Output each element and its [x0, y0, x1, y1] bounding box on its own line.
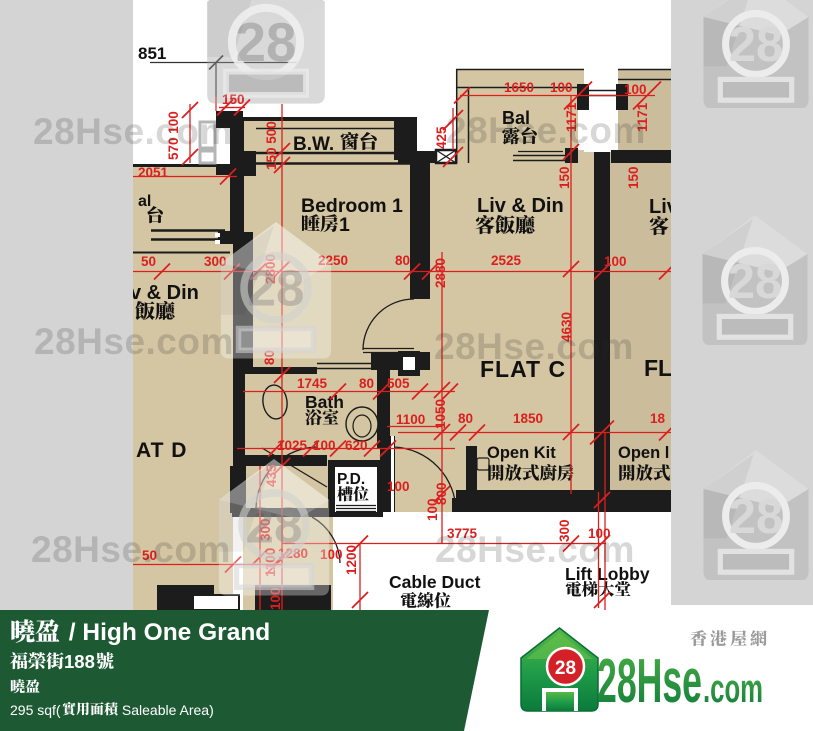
svg-text:1050: 1050	[433, 399, 448, 429]
svg-text:100: 100	[550, 80, 573, 95]
svg-text:18: 18	[650, 411, 666, 426]
svg-text:100: 100	[387, 479, 410, 494]
svg-text:Bedroom 1: Bedroom 1	[301, 195, 403, 217]
svg-text:FL: FL	[644, 355, 672, 381]
svg-text:B.W.: B.W.	[293, 134, 334, 155]
svg-text:150: 150	[626, 166, 641, 189]
svg-text:150 500: 150 500	[264, 121, 279, 170]
svg-text:2880: 2880	[433, 258, 448, 288]
svg-text:Cable Duct: Cable Duct	[389, 572, 481, 592]
svg-text:28: 28	[729, 18, 783, 72]
svg-text:1850: 1850	[513, 411, 543, 426]
svg-text:100: 100	[604, 254, 627, 269]
svg-text:28Hse.com: 28Hse.com	[34, 321, 234, 362]
svg-text:28Hse.com: 28Hse.com	[446, 110, 646, 151]
svg-text:505: 505	[387, 376, 410, 391]
svg-text:100: 100	[313, 438, 336, 453]
svg-text:Open Kit: Open Kit	[487, 444, 556, 462]
svg-text:150: 150	[222, 92, 245, 107]
svg-text:28: 28	[728, 255, 782, 309]
svg-text:80: 80	[395, 253, 410, 268]
svg-text:28Hse.com: 28Hse.com	[434, 326, 634, 367]
svg-text:188: 188	[64, 651, 95, 672]
svg-text:Saleable Area): Saleable Area)	[118, 702, 214, 718]
svg-text:28: 28	[555, 658, 576, 679]
svg-text:1650: 1650	[504, 80, 534, 95]
svg-text:100: 100	[425, 498, 440, 521]
svg-text:2051: 2051	[138, 165, 169, 180]
svg-text:Open l: Open l	[618, 444, 669, 462]
svg-text:v & Din: v & Din	[130, 282, 199, 304]
svg-text:1100: 1100	[396, 412, 425, 427]
svg-text:28: 28	[729, 490, 783, 544]
svg-text:295 sqf(: 295 sqf(	[10, 702, 61, 718]
svg-text:28: 28	[248, 260, 305, 317]
svg-text:1200: 1200	[344, 545, 359, 575]
svg-text:851: 851	[138, 44, 166, 63]
svg-text:28Hse.com: 28Hse.com	[435, 529, 635, 570]
svg-text:28: 28	[236, 12, 297, 73]
svg-text:/ High One Grand: / High One Grand	[62, 619, 270, 646]
svg-text:AT D: AT D	[136, 439, 187, 462]
svg-text:2525: 2525	[491, 253, 522, 268]
svg-text:80: 80	[458, 411, 473, 426]
svg-text:1: 1	[339, 214, 350, 236]
svg-text:al: al	[138, 193, 151, 210]
svg-text:80: 80	[359, 376, 374, 391]
svg-text:Liv & Din: Liv & Din	[477, 195, 564, 217]
svg-text:28Hse.com: 28Hse.com	[31, 529, 231, 570]
svg-text:.com: .com	[703, 667, 763, 711]
svg-text:150: 150	[557, 166, 572, 189]
svg-text:1745: 1745	[297, 376, 328, 391]
svg-text:28Hse.com: 28Hse.com	[33, 111, 233, 152]
svg-text:100: 100	[624, 82, 647, 97]
svg-text:28Hse: 28Hse	[597, 647, 702, 716]
svg-text:1025: 1025	[277, 438, 308, 453]
svg-text:P.D.: P.D.	[337, 471, 365, 488]
svg-text:620: 620	[345, 438, 368, 453]
svg-text:28: 28	[246, 497, 303, 554]
svg-text:50: 50	[141, 254, 156, 269]
svg-text:Bath: Bath	[305, 392, 344, 412]
